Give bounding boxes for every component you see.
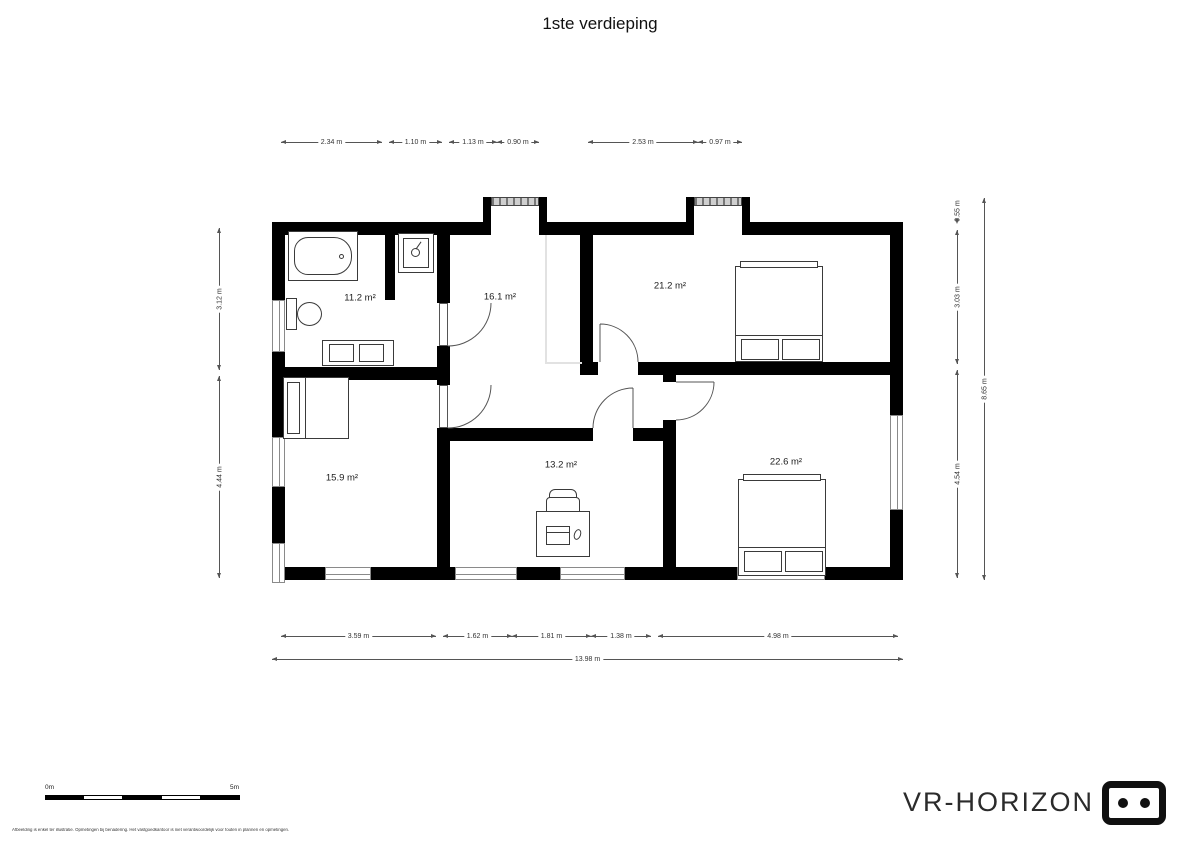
room-label-office: 13.2 m² <box>545 460 577 471</box>
dormer1-window <box>491 197 539 206</box>
room-label-bathroom: 11.2 m² <box>344 293 376 304</box>
window <box>272 543 285 583</box>
wall-bathroom-stub <box>385 222 395 300</box>
dimension-label: 1.10 m <box>402 139 429 146</box>
door-opening-bedroom-top-right <box>598 362 638 375</box>
scale-start-label: 0m <box>45 784 54 791</box>
dormer2-window <box>694 197 742 206</box>
double-bed-top-pillow-left <box>741 339 779 360</box>
window <box>455 567 517 580</box>
laptop <box>546 526 570 545</box>
dimension-line: 0.90 m <box>497 142 539 143</box>
dimension-label: 1.81 m <box>538 633 565 640</box>
double-bed-bottom-fold <box>739 547 825 548</box>
wall-top-3 <box>750 222 903 235</box>
dormer2-stub-left <box>686 197 694 235</box>
scale-bar <box>45 795 240 800</box>
window <box>272 437 285 487</box>
wall-h3-a <box>437 428 593 441</box>
room-label-bedroom-bottom-right: 22.6 m² <box>770 457 802 468</box>
dimension-line: 0.97 m <box>698 142 742 143</box>
wall-right <box>890 222 903 580</box>
vr-goggles-icon <box>1102 781 1166 825</box>
floor-plan-page: 1ste verdieping <box>0 0 1200 849</box>
dimension-label: 4.98 m <box>764 633 791 640</box>
brand-name: VR-HORIZON <box>903 787 1094 818</box>
dimension-label: 3.59 m <box>345 633 372 640</box>
scale-end-label: 5m <box>230 784 239 791</box>
door-leaf-bathroom <box>439 303 448 346</box>
room-label-bedroom-bottom-left: 15.9 m² <box>326 473 358 484</box>
dimension-label: 0.90 m <box>504 139 531 146</box>
dimension-label: 2.34 m <box>318 139 345 146</box>
dimension-label: 1.13 m <box>459 139 486 146</box>
dimension-label: 3.03 m <box>955 283 962 310</box>
double-bed-bottom-pillow-right <box>785 551 823 572</box>
double-bed-top-board <box>740 261 818 268</box>
scale-segment <box>162 795 201 800</box>
disclaimer-text: Afbeelding is enkel ter illustratie. Opm… <box>12 828 289 832</box>
dimension-line: 3.03 m <box>957 230 958 364</box>
page-title: 1ste verdieping <box>0 14 1200 34</box>
wall-v2 <box>580 222 593 375</box>
scale-segment <box>201 795 240 800</box>
vr-goggles-lens-right <box>1140 798 1150 808</box>
ceiling-line-h <box>545 362 582 364</box>
toilet-tank <box>286 298 297 330</box>
bathtub-drain <box>339 254 344 259</box>
dimension-line: 1.13 m <box>449 142 497 143</box>
sink-basin-right <box>359 344 384 362</box>
dimension-line: 1.81 m <box>512 636 591 637</box>
wall-v1-c <box>437 428 450 567</box>
door-opening-office <box>593 428 633 441</box>
wall-h2-b <box>637 362 903 375</box>
dimension-line: 3.12 m <box>219 228 220 370</box>
dimension-line: 3.59 m <box>281 636 436 637</box>
laptop-hinge <box>547 532 569 533</box>
window <box>272 300 285 352</box>
scale-segment <box>123 795 162 800</box>
dimension-line: 1.62 m <box>443 636 512 637</box>
ceiling-line-v <box>545 235 547 363</box>
double-bed-top-pillow-right <box>782 339 820 360</box>
dimension-line: 4.54 m <box>957 370 958 578</box>
wall-top-2 <box>547 222 694 235</box>
dimension-line-total: 8.65 m <box>984 198 985 580</box>
dimension-label: 1.38 m <box>607 633 634 640</box>
room-label-bedroom-top-right: 21.2 m² <box>654 281 686 292</box>
window <box>325 567 371 580</box>
dimension-line-total: 13.98 m <box>272 659 903 660</box>
dimension-label: 2.53 m <box>629 139 656 146</box>
dimension-line: 1.38 m <box>591 636 651 637</box>
dimension-line: 2.34 m <box>281 142 382 143</box>
toilet-bowl <box>297 302 322 326</box>
sink-basin-left <box>329 344 354 362</box>
single-bed-pillow <box>287 382 300 434</box>
dimension-label: 4.44 m <box>217 463 224 490</box>
window <box>560 567 625 580</box>
wall-v3-b <box>663 420 676 580</box>
wall-h2-a <box>580 362 598 375</box>
door-opening-bedroom-bottom-right <box>663 382 676 420</box>
door-leaf-bedroom-left <box>439 385 448 428</box>
dimension-line: 0.55 m <box>957 198 958 224</box>
dimension-label: 3.12 m <box>217 285 224 312</box>
dimension-label: 13.98 m <box>572 656 603 663</box>
window <box>890 415 903 510</box>
scale-segment <box>84 795 123 800</box>
double-bed-top-fold <box>736 335 822 336</box>
dimension-line: 4.98 m <box>658 636 898 637</box>
vr-goggles-lens-left <box>1118 798 1128 808</box>
dimension-line: 1.10 m <box>389 142 442 143</box>
dimension-label: 0.55 m <box>955 197 962 224</box>
dormer1-stub-right <box>539 197 547 235</box>
scale-segment <box>45 795 84 800</box>
wall-v1-a <box>437 222 450 303</box>
dormer1-stub-left <box>483 197 491 235</box>
door-swing-arcs <box>0 0 1200 849</box>
room-label-hall: 16.1 m² <box>484 292 516 303</box>
dormer2-stub-right <box>742 197 750 235</box>
dimension-line: 2.53 m <box>588 142 698 143</box>
double-bed-bottom-pillow-left <box>744 551 782 572</box>
dimension-label: 4.54 m <box>955 460 962 487</box>
dimension-label: 1.62 m <box>464 633 491 640</box>
single-bed-fold <box>305 378 306 438</box>
wall-v3-a <box>663 362 676 382</box>
double-bed-bottom-board <box>743 474 821 481</box>
dimension-label: 0.97 m <box>706 139 733 146</box>
dimension-line: 4.44 m <box>219 376 220 578</box>
dimension-label: 8.65 m <box>982 375 989 402</box>
